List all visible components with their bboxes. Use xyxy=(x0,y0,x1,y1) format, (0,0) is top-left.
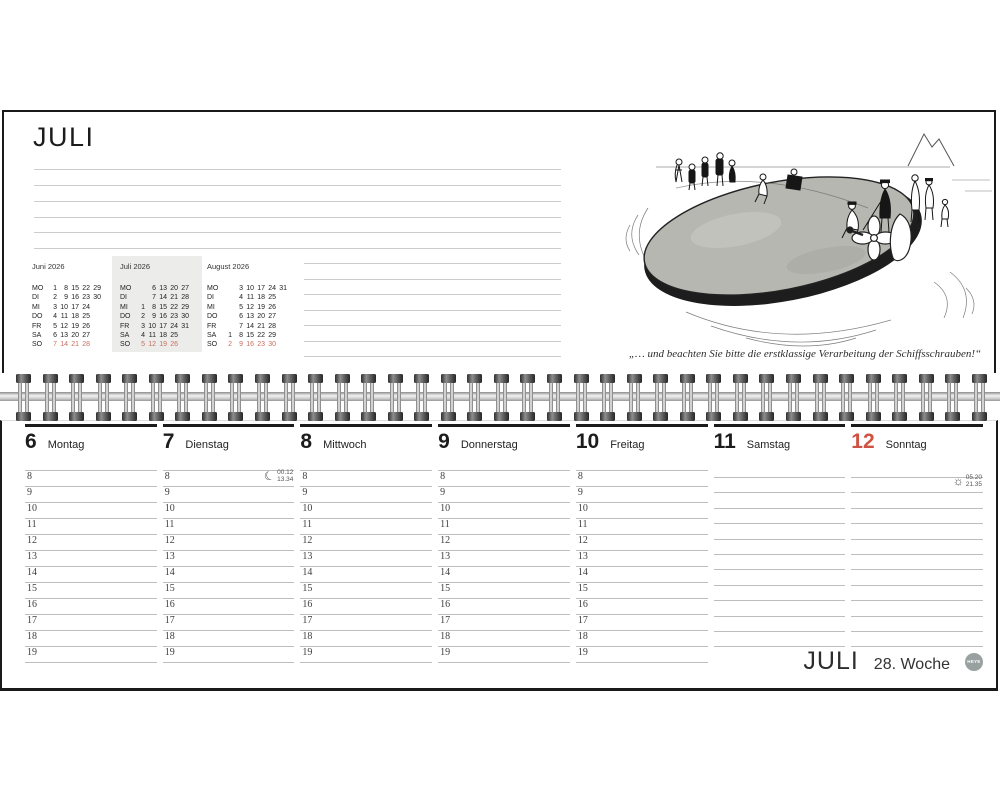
spiral-coil xyxy=(441,374,456,421)
date-cell: 1 xyxy=(46,284,57,293)
date-cell: 24 xyxy=(79,303,90,312)
date-cell: 10 xyxy=(243,284,254,293)
hour-row: 9 xyxy=(25,487,157,503)
date-cell: 8 xyxy=(57,284,68,293)
date-cell: 28 xyxy=(79,340,90,349)
hour-label: 9 xyxy=(440,487,445,498)
hour-row: 8 xyxy=(576,471,708,487)
day-header: 9Donnerstag xyxy=(438,424,570,470)
day-column-samstag: 11Samstag xyxy=(714,424,846,663)
coil-wire xyxy=(291,380,295,415)
coil-cap xyxy=(945,374,960,383)
notes-line xyxy=(34,201,561,202)
weekday-label: DI xyxy=(32,293,46,302)
weekday-label: SO xyxy=(207,340,221,349)
hour-row: 14 xyxy=(25,567,157,583)
hour-label: 10 xyxy=(440,503,450,514)
date-cell xyxy=(189,293,200,302)
coil-wire xyxy=(761,380,765,415)
date-cell xyxy=(221,322,232,331)
hour-label: 18 xyxy=(302,631,312,642)
date-cell: 21 xyxy=(167,293,178,302)
coil-wire xyxy=(636,380,640,415)
date-cell: 16 xyxy=(156,312,167,321)
spiral-coil xyxy=(600,374,615,421)
weekday-label: SA xyxy=(207,331,221,340)
coil-cap xyxy=(282,374,297,383)
spiral-coil xyxy=(892,374,907,421)
date-cell: 6 xyxy=(145,284,156,293)
mini-calendar-row: MO310172431 xyxy=(207,284,317,293)
hour-label: 17 xyxy=(578,615,588,626)
spiral-coil xyxy=(414,374,429,421)
hour-label: 19 xyxy=(440,647,450,658)
mountains xyxy=(908,134,954,166)
hour-label: 18 xyxy=(165,631,175,642)
hour-grid: 8910111213141516171819 xyxy=(438,470,570,663)
spiral-coil xyxy=(282,374,297,421)
date-cell xyxy=(101,322,112,331)
blank-line xyxy=(851,585,983,600)
hour-row: 15 xyxy=(438,583,570,599)
coil-wire xyxy=(184,380,188,415)
blank-line xyxy=(851,523,983,538)
coil-wire xyxy=(894,380,898,415)
spiral-coil xyxy=(361,374,376,421)
moon-icon: ☾ xyxy=(263,469,277,484)
hour-row: 11 xyxy=(25,519,157,535)
hour-label: 13 xyxy=(165,551,175,562)
date-cell: 14 xyxy=(243,322,254,331)
mini-calendar-row: DO29162330 xyxy=(120,312,200,321)
mini-calendar-row: SO29162330 xyxy=(207,340,317,349)
hour-row: 14 xyxy=(438,567,570,583)
blank-line xyxy=(851,631,983,646)
mini-calendar-row: SO5121926 xyxy=(120,340,200,349)
hour-label: 18 xyxy=(578,631,588,642)
coil-wire xyxy=(158,380,162,415)
hour-row: 18 xyxy=(300,631,432,647)
coil-cap xyxy=(388,374,403,383)
day-name: Montag xyxy=(48,439,85,451)
coil-wire xyxy=(682,380,686,415)
date-cell: 24 xyxy=(167,322,178,331)
day-header: 8Mittwoch xyxy=(300,424,432,470)
coil-wire xyxy=(735,380,739,415)
date-cell xyxy=(276,303,287,312)
hour-row: 14 xyxy=(163,567,295,583)
date-cell: 18 xyxy=(156,331,167,340)
date-cell: 12 xyxy=(243,303,254,312)
date-cell: 30 xyxy=(90,293,101,302)
spiral-coil xyxy=(69,374,84,421)
date-cell: 20 xyxy=(254,312,265,321)
date-cell: 16 xyxy=(243,340,254,349)
hour-label: 14 xyxy=(302,567,312,578)
coil-wire xyxy=(257,380,261,415)
date-cell: 12 xyxy=(145,340,156,349)
hour-label: 9 xyxy=(165,487,170,498)
coil-cap xyxy=(520,374,535,383)
blank-line xyxy=(714,492,846,507)
spiral-coil xyxy=(467,374,482,421)
coil-wire xyxy=(496,380,500,415)
weekday-label: DO xyxy=(207,312,221,321)
hour-label: 12 xyxy=(165,535,175,546)
coil-wire xyxy=(397,380,401,415)
date-cell: 19 xyxy=(254,303,265,312)
weekday-label: SO xyxy=(120,340,134,349)
hour-row: 14 xyxy=(576,567,708,583)
coil-wire xyxy=(284,380,288,415)
mini-calendar: Juli 2026MO6132027DI7142128MI18152229DO2… xyxy=(120,262,200,350)
moonrise-time: 00.12 xyxy=(277,469,293,476)
coil-wire xyxy=(450,380,454,415)
coil-cap xyxy=(919,374,934,383)
coil-wire xyxy=(901,380,905,415)
coil-cap xyxy=(441,374,456,383)
hour-label: 9 xyxy=(302,487,307,498)
spiral-rail xyxy=(0,392,1000,401)
hour-row: 16 xyxy=(300,599,432,615)
coil-wire xyxy=(124,380,128,415)
mini-calendar-row: DO6132027 xyxy=(207,312,317,321)
sun-note: ☼05.2021.35 xyxy=(953,474,982,488)
mini-calendar-row: SA6132027 xyxy=(32,331,112,340)
hour-row: 9 xyxy=(163,487,295,503)
date-cell: 21 xyxy=(68,340,79,349)
blank-line xyxy=(851,508,983,523)
date-cell: 2 xyxy=(221,340,232,349)
spiral-coil xyxy=(574,374,589,421)
hour-row: 11 xyxy=(438,519,570,535)
coil-wire xyxy=(363,380,367,415)
blank-line xyxy=(714,616,846,631)
blank-lines xyxy=(714,477,846,662)
mini-calendar-row: SO7142128 xyxy=(32,340,112,349)
coil-cap xyxy=(706,374,721,383)
coil-cap xyxy=(335,374,350,383)
day-name: Freitag xyxy=(610,439,644,451)
hour-row: 18 xyxy=(576,631,708,647)
coil-cap xyxy=(149,374,164,383)
spiral-coil xyxy=(786,374,801,421)
date-cell: 19 xyxy=(68,322,79,331)
hour-label: 10 xyxy=(302,503,312,514)
spiral-coil xyxy=(866,374,881,421)
coil-wire xyxy=(230,380,234,415)
coil-cap xyxy=(892,374,907,383)
coil-wire xyxy=(875,380,879,415)
spiral-coil xyxy=(255,374,270,421)
hour-row: 16 xyxy=(163,599,295,615)
hour-label: 8 xyxy=(440,471,445,482)
blank-line xyxy=(714,477,846,492)
date-cell: 5 xyxy=(134,340,145,349)
coil-cap xyxy=(202,374,217,383)
blank-line xyxy=(851,569,983,584)
spiral-coil xyxy=(520,374,535,421)
blank-lines xyxy=(851,477,983,662)
hour-row: 10 xyxy=(438,503,570,519)
hour-label: 11 xyxy=(578,519,588,530)
date-cell xyxy=(189,340,200,349)
date-cell: 28 xyxy=(265,322,276,331)
date-cell: 18 xyxy=(68,312,79,321)
coil-cap xyxy=(813,374,828,383)
date-cell: 4 xyxy=(134,331,145,340)
hour-row: 9 xyxy=(300,487,432,503)
notes-line xyxy=(34,185,561,186)
day-column-dienstag: 7Dienstag8910111213141516171819☾00.1213.… xyxy=(163,424,295,663)
coil-wire xyxy=(25,380,29,415)
hour-label: 8 xyxy=(302,471,307,482)
day-name: Samstag xyxy=(747,439,790,451)
date-cell xyxy=(134,284,145,293)
heye-logo: HEYE xyxy=(965,653,983,671)
hour-row: 13 xyxy=(163,551,295,567)
coil-wire xyxy=(583,380,587,415)
coil-wire xyxy=(768,380,772,415)
day-number: 11 xyxy=(714,430,736,454)
hour-row: 13 xyxy=(576,551,708,567)
spiral-coil xyxy=(919,374,934,421)
date-cell: 27 xyxy=(79,331,90,340)
day-name: Donnerstag xyxy=(461,439,518,451)
blank-line xyxy=(714,554,846,569)
hour-row: 12 xyxy=(25,535,157,551)
hour-grid: 8910111213141516171819 xyxy=(163,470,295,663)
day-header: 12Sonntag xyxy=(851,424,983,470)
hour-label: 12 xyxy=(578,535,588,546)
hour-row: 17 xyxy=(163,615,295,631)
hour-label: 11 xyxy=(302,519,312,530)
coil-wire xyxy=(662,380,666,415)
hour-label: 15 xyxy=(27,583,37,594)
date-cell: 30 xyxy=(178,312,189,321)
hour-row: 10 xyxy=(576,503,708,519)
date-cell: 5 xyxy=(46,322,57,331)
spiral-coil xyxy=(945,374,960,421)
day-name: Sonntag xyxy=(886,439,927,451)
coil-cap xyxy=(866,374,881,383)
hour-label: 12 xyxy=(27,535,37,546)
spiral-coil xyxy=(335,374,350,421)
day-number: 10 xyxy=(576,430,599,454)
weekday-label: MO xyxy=(207,284,221,293)
date-cell: 4 xyxy=(232,293,243,302)
hour-row: 9 xyxy=(576,487,708,503)
day-header: 10Freitag xyxy=(576,424,708,470)
date-cell: 29 xyxy=(178,303,189,312)
blank-line xyxy=(851,616,983,631)
date-cell: 1 xyxy=(134,303,145,312)
date-cell: 11 xyxy=(57,312,68,321)
weekday-label: FR xyxy=(32,322,46,331)
date-cell: 10 xyxy=(145,322,156,331)
coil-wire xyxy=(921,380,925,415)
hour-row: 18 xyxy=(438,631,570,647)
hour-row: 15 xyxy=(163,583,295,599)
date-cell xyxy=(276,331,287,340)
hour-row: 19 xyxy=(163,647,295,663)
hour-label: 19 xyxy=(578,647,588,658)
date-cell: 24 xyxy=(265,284,276,293)
coil-cap xyxy=(653,374,668,383)
hour-label: 16 xyxy=(27,599,37,610)
hour-row: 11 xyxy=(576,519,708,535)
spiral-coil xyxy=(122,374,137,421)
date-cell xyxy=(101,340,112,349)
date-cell xyxy=(90,331,101,340)
blank-line xyxy=(714,523,846,538)
moonset-time: 13.34 xyxy=(277,476,293,483)
date-cell: 5 xyxy=(232,303,243,312)
weekday-label: DO xyxy=(120,312,134,321)
hour-row: 13 xyxy=(300,551,432,567)
hour-row: 10 xyxy=(25,503,157,519)
hour-label: 11 xyxy=(440,519,450,530)
mini-calendar-title: Juni 2026 xyxy=(32,262,112,271)
mini-calendar-row: FR7142128 xyxy=(207,322,317,331)
blank-line xyxy=(714,600,846,615)
hour-row: 11 xyxy=(300,519,432,535)
coil-cap xyxy=(839,374,854,383)
day-number: 12 xyxy=(851,430,874,454)
spiral-coil xyxy=(16,374,31,421)
date-cell xyxy=(90,322,101,331)
blank-line xyxy=(851,600,983,615)
coil-cap xyxy=(786,374,801,383)
date-cell: 22 xyxy=(254,331,265,340)
coil-wire xyxy=(576,380,580,415)
hour-label: 16 xyxy=(165,599,175,610)
blank-line xyxy=(714,539,846,554)
date-cell: 1 xyxy=(221,331,232,340)
spiral-coil xyxy=(680,374,695,421)
hour-label: 9 xyxy=(27,487,32,498)
coil-wire xyxy=(522,380,526,415)
day-column-montag: 6Montag8910111213141516171819 xyxy=(25,424,157,663)
hour-row: 14 xyxy=(300,567,432,583)
day-number: 6 xyxy=(25,430,37,454)
hour-label: 13 xyxy=(440,551,450,562)
top-page: JULI Juni 2026MO18152229DI29162330MI3101… xyxy=(2,110,996,373)
weekday-label: FR xyxy=(207,322,221,331)
coil-wire xyxy=(556,380,560,415)
hour-label: 14 xyxy=(440,567,450,578)
date-cell: 21 xyxy=(254,322,265,331)
blank-line xyxy=(714,585,846,600)
date-cell: 15 xyxy=(156,303,167,312)
date-cell xyxy=(276,322,287,331)
date-cell xyxy=(178,340,189,349)
date-cell: 23 xyxy=(79,293,90,302)
date-cell xyxy=(101,331,112,340)
date-cell: 29 xyxy=(265,331,276,340)
mini-calendar-row: MO6132027 xyxy=(120,284,200,293)
date-cell: 26 xyxy=(79,322,90,331)
bottom-page: 6Montag89101112131415161718197Dienstag89… xyxy=(0,420,998,691)
date-cell: 3 xyxy=(232,284,243,293)
date-cell: 25 xyxy=(167,331,178,340)
hour-grid: 8910111213141516171819 xyxy=(576,470,708,663)
date-cell xyxy=(221,312,232,321)
notes-line xyxy=(34,217,561,218)
mini-calendar-row: DI7142128 xyxy=(120,293,200,302)
notes-line xyxy=(304,310,561,311)
hour-row: 17 xyxy=(25,615,157,631)
coil-wire xyxy=(848,380,852,415)
mini-calendar-row: SA4111825 xyxy=(120,331,200,340)
date-cell: 14 xyxy=(57,340,68,349)
coil-wire xyxy=(264,380,268,415)
date-cell: 11 xyxy=(243,293,254,302)
date-cell xyxy=(189,303,200,312)
coil-wire xyxy=(98,380,102,415)
hour-row: 18 xyxy=(163,631,295,647)
coil-wire xyxy=(841,380,845,415)
coil-wire xyxy=(177,380,181,415)
date-cell: 29 xyxy=(90,284,101,293)
blank-line xyxy=(851,554,983,569)
date-cell: 2 xyxy=(46,293,57,302)
date-cell xyxy=(221,284,232,293)
date-cell: 8 xyxy=(232,331,243,340)
coil-wire xyxy=(337,380,341,415)
coil-wire xyxy=(795,380,799,415)
date-cell: 12 xyxy=(57,322,68,331)
hour-row: 8 xyxy=(438,471,570,487)
coil-wire xyxy=(105,380,109,415)
coil-wire xyxy=(317,380,321,415)
cartoon-illustration xyxy=(616,120,994,350)
coil-wire xyxy=(71,380,75,415)
coil-wire xyxy=(715,380,719,415)
spiral-coil xyxy=(813,374,828,421)
blank-line xyxy=(714,569,846,584)
coil-cap xyxy=(43,374,58,383)
coil-cap xyxy=(494,374,509,383)
coil-wire xyxy=(344,380,348,415)
spiral-coil xyxy=(972,374,987,421)
date-cell: 7 xyxy=(232,322,243,331)
coil-wire xyxy=(629,380,633,415)
hour-label: 17 xyxy=(165,615,175,626)
date-cell xyxy=(276,312,287,321)
notes-line xyxy=(34,248,561,249)
hour-label: 11 xyxy=(165,519,175,530)
day-column-sonntag: 12Sonntag☼05.2021.35 xyxy=(851,424,983,663)
weekday-label: MI xyxy=(120,303,134,312)
spiral-coil xyxy=(202,374,217,421)
hour-label: 13 xyxy=(302,551,312,562)
notes-line xyxy=(304,325,561,326)
notes-line xyxy=(304,341,561,342)
coil-wire xyxy=(742,380,746,415)
date-cell: 22 xyxy=(79,284,90,293)
date-cell: 3 xyxy=(46,303,57,312)
mini-calendar-row: MI18152229 xyxy=(120,303,200,312)
date-cell xyxy=(90,312,101,321)
spiral-coil xyxy=(96,374,111,421)
date-cell: 27 xyxy=(265,312,276,321)
hour-label: 16 xyxy=(302,599,312,610)
hour-label: 15 xyxy=(578,583,588,594)
date-cell: 9 xyxy=(145,312,156,321)
day-name: Dienstag xyxy=(185,439,228,451)
coil-cap xyxy=(467,374,482,383)
